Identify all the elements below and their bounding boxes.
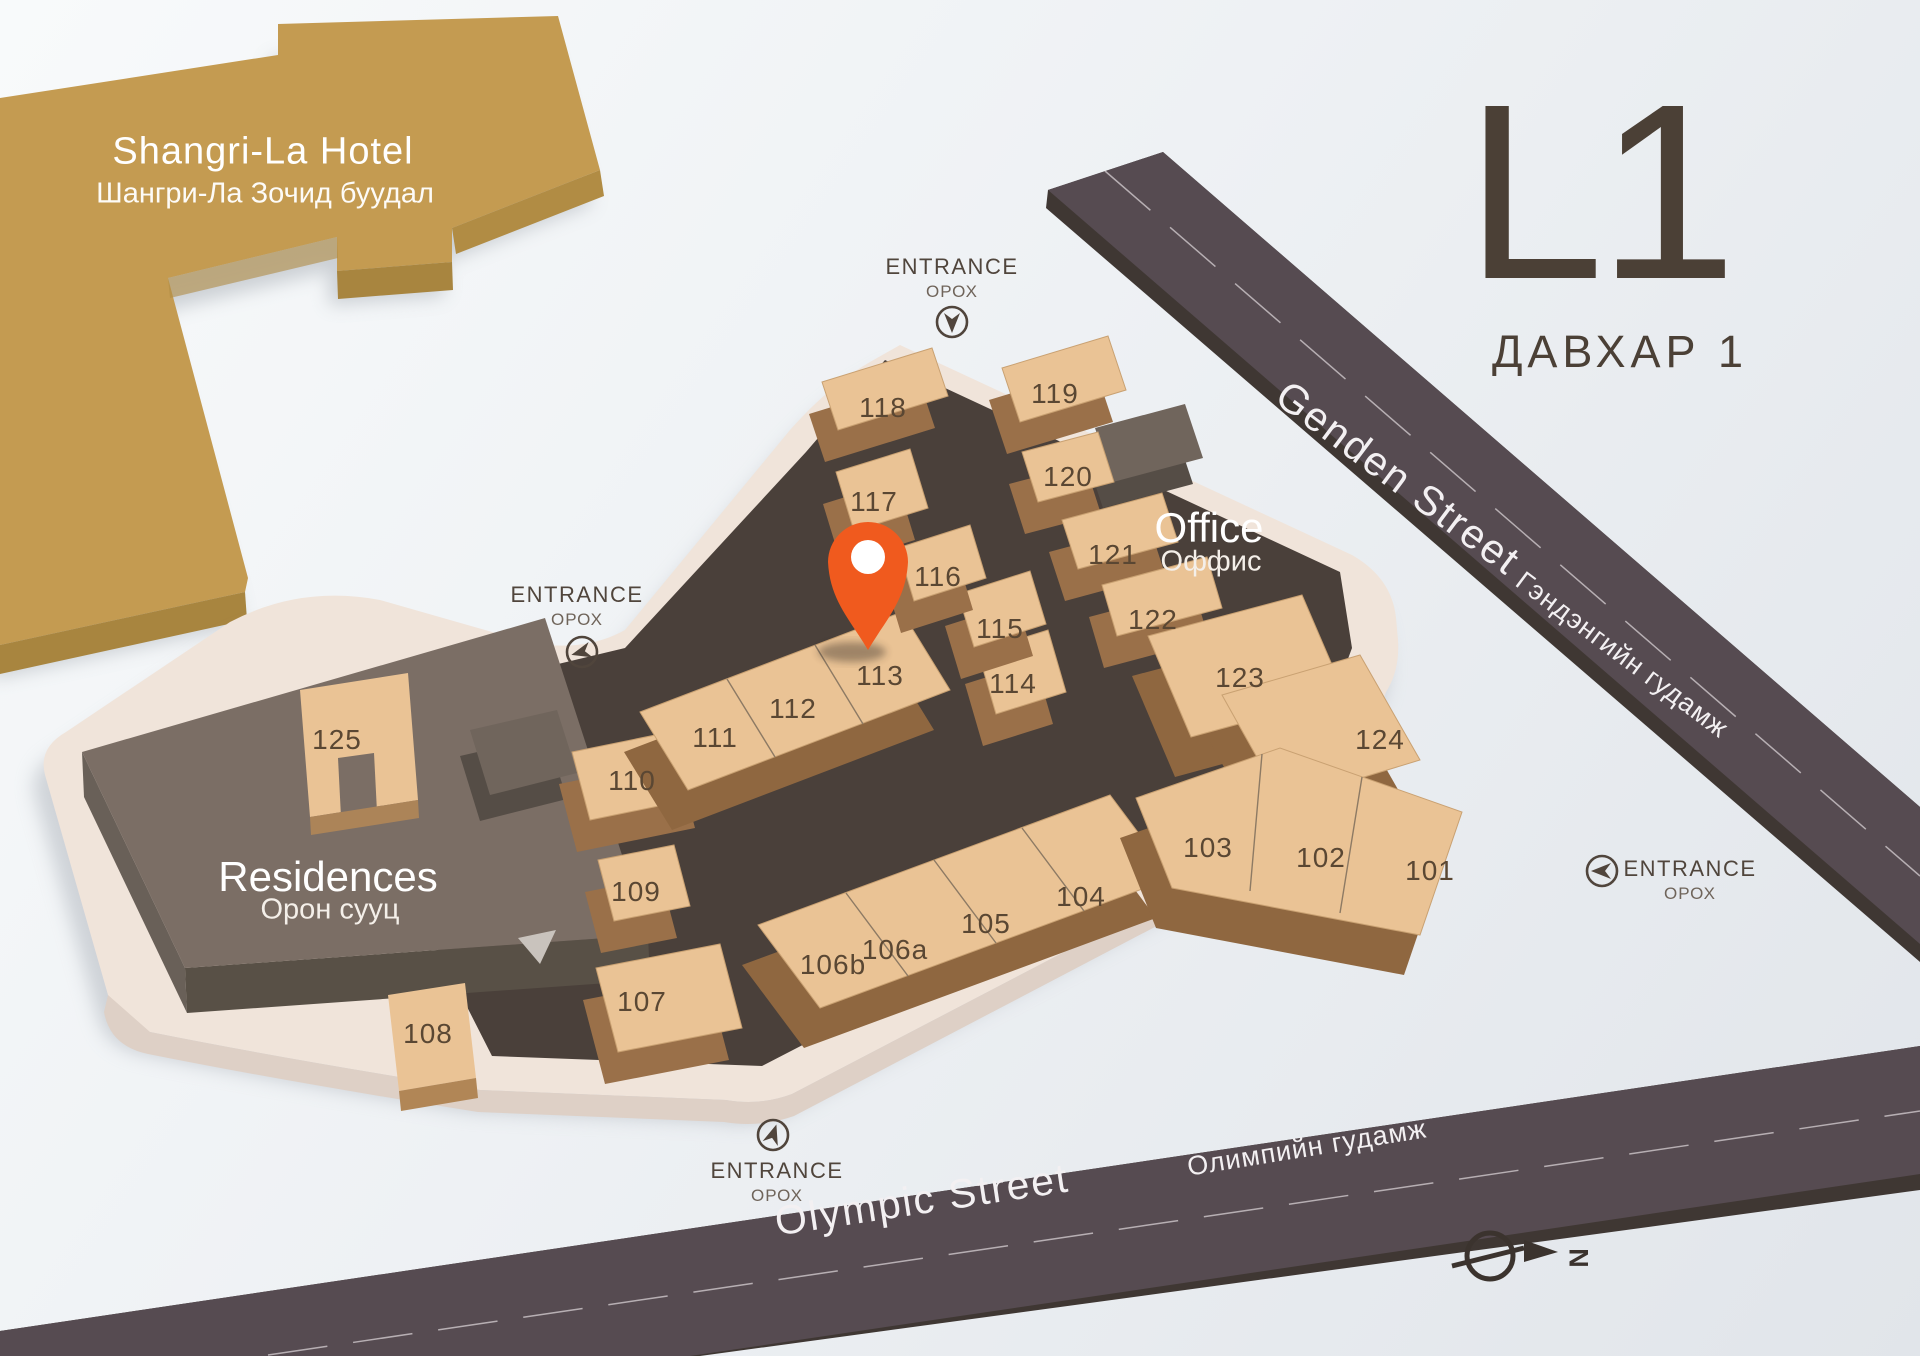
entrance-north: ENTRANCE ОРОХ [885,254,1018,302]
entrance-south: ENTRANCE ОРОХ [710,1158,843,1206]
hotel-name: Shangri-La Hotel [112,131,413,174]
unit-label-103[interactable]: 103 [1183,832,1233,864]
hotel-building [0,16,604,679]
unit-label-116[interactable]: 116 [914,561,962,593]
unit-label-106a[interactable]: 106a [862,934,928,966]
unit-label-102[interactable]: 102 [1296,842,1346,874]
zone-residences-mn: Орон сууц [261,894,400,927]
unit-label-107[interactable]: 107 [617,986,667,1018]
entrance-north-arrow-icon [934,304,970,340]
floor-map-stage: Shangri-La Hotel Шангри-Ла Зочид буудал … [0,0,1920,1356]
unit-label-124[interactable]: 124 [1355,724,1405,756]
floor-name: ДАВХАР 1 [1492,326,1748,378]
entrance-south-label: ENTRANCE [710,1158,843,1184]
unit-label-114[interactable]: 114 [989,668,1037,700]
hotel-name-mn: Шангри-Ла Зочид буудал [96,178,434,211]
entrance-east: ENTRANCE ОРОХ [1623,856,1756,904]
unit-label-122[interactable]: 122 [1128,604,1178,636]
entrance-north-label: ENTRANCE [885,254,1018,280]
unit-label-123[interactable]: 123 [1215,662,1265,694]
unit-label-117[interactable]: 117 [850,486,898,518]
unit-label-109[interactable]: 109 [611,876,661,908]
compass-north-label: N [1563,1248,1594,1268]
unit-label-106b[interactable]: 106b [800,949,866,981]
unit-label-105[interactable]: 105 [961,908,1011,940]
unit-label-125[interactable]: 125 [312,724,362,756]
entrance-south-arrow-icon [755,1117,791,1153]
unit-label-104[interactable]: 104 [1056,881,1106,913]
entrance-west: ENTRANCE ОРОХ [510,582,643,630]
entrance-north-sub: ОРОХ [885,282,1018,302]
unit-label-113[interactable]: 113 [856,660,904,692]
entrance-east-sub: ОРОХ [1623,884,1756,904]
unit-label-121[interactable]: 121 [1088,539,1138,571]
entrance-east-arrow-icon [1584,853,1620,889]
unit-label-111[interactable]: 111 [692,722,738,754]
unit-label-108[interactable]: 108 [403,1018,453,1050]
unit-label-120[interactable]: 120 [1043,461,1093,493]
entrance-west-label: ENTRANCE [510,582,643,608]
entrance-east-label: ENTRANCE [1623,856,1756,882]
unit-label-118[interactable]: 118 [859,392,907,424]
entrance-west-arrow-icon [564,634,600,670]
floor-code: L1 [1465,67,1731,317]
entrance-west-sub: ОРОХ [510,610,643,630]
unit-label-112[interactable]: 112 [769,693,817,725]
entrance-south-sub: ОРОХ [710,1186,843,1206]
unit-label-101[interactable]: 101 [1405,855,1455,887]
unit-label-110[interactable]: 110 [608,765,656,797]
zone-office-mn: Оффис [1161,546,1262,579]
unit-label-119[interactable]: 119 [1031,378,1079,410]
unit-label-115[interactable]: 115 [976,613,1024,645]
